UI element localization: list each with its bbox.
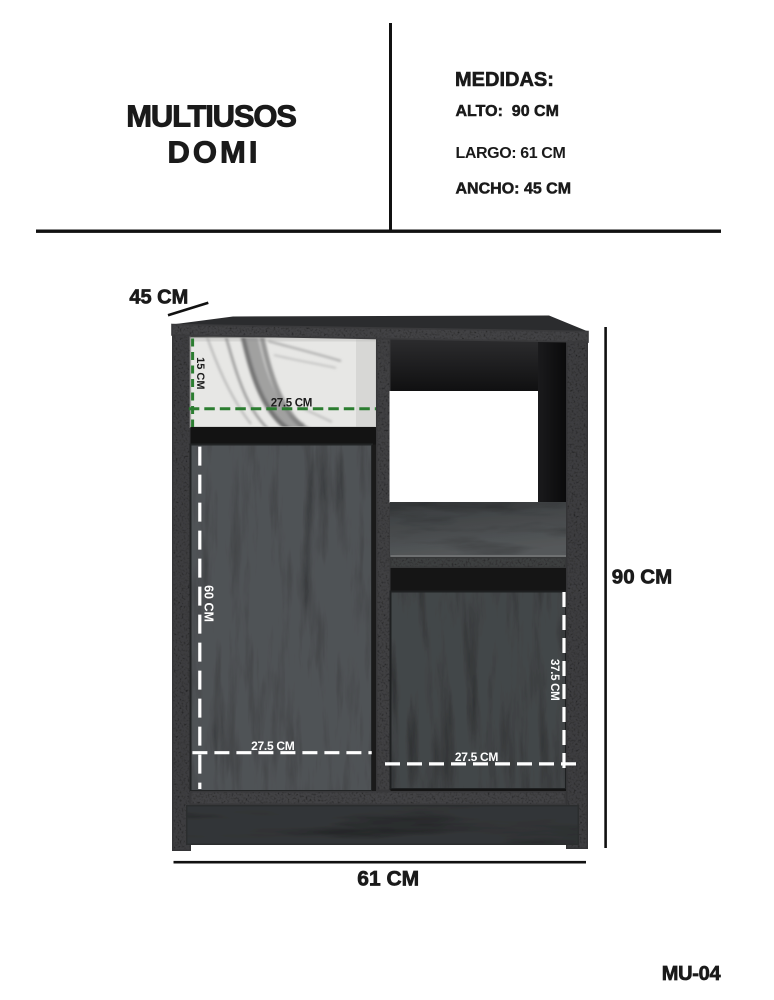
svg-text:90 CM: 90 CM <box>612 566 672 589</box>
svg-text:ANCHO: 45 CM: ANCHO: 45 CM <box>456 180 572 197</box>
svg-text:DOMI: DOMI <box>168 135 261 170</box>
svg-text:MU-04: MU-04 <box>662 963 722 985</box>
svg-text:15 CM: 15 CM <box>194 357 206 389</box>
svg-text:61 CM: 61 CM <box>357 868 419 891</box>
svg-text:27.5 CM: 27.5 CM <box>271 397 312 409</box>
svg-text:45 CM: 45 CM <box>129 287 188 309</box>
svg-text:MEDIDAS:: MEDIDAS: <box>455 69 554 91</box>
svg-text:LARGO: 61 CM: LARGO: 61 CM <box>456 145 566 162</box>
svg-text:ALTO: 90 CM: ALTO: 90 CM <box>456 103 559 120</box>
svg-text:37.5 CM: 37.5 CM <box>548 659 560 700</box>
svg-text:MULTIUSOS: MULTIUSOS <box>126 99 296 134</box>
svg-text:27.5 CM: 27.5 CM <box>455 750 499 764</box>
svg-text:60 CM: 60 CM <box>202 585 216 622</box>
svg-text:27.5 CM: 27.5 CM <box>251 739 295 753</box>
